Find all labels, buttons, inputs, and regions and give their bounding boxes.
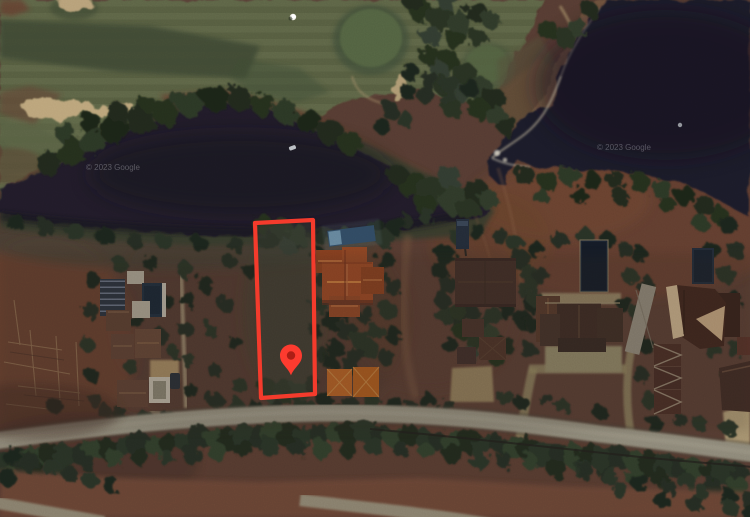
svg-text:© 2023 Google: © 2023 Google [597, 143, 651, 152]
svg-text:© 2023 Google: © 2023 Google [86, 163, 140, 172]
